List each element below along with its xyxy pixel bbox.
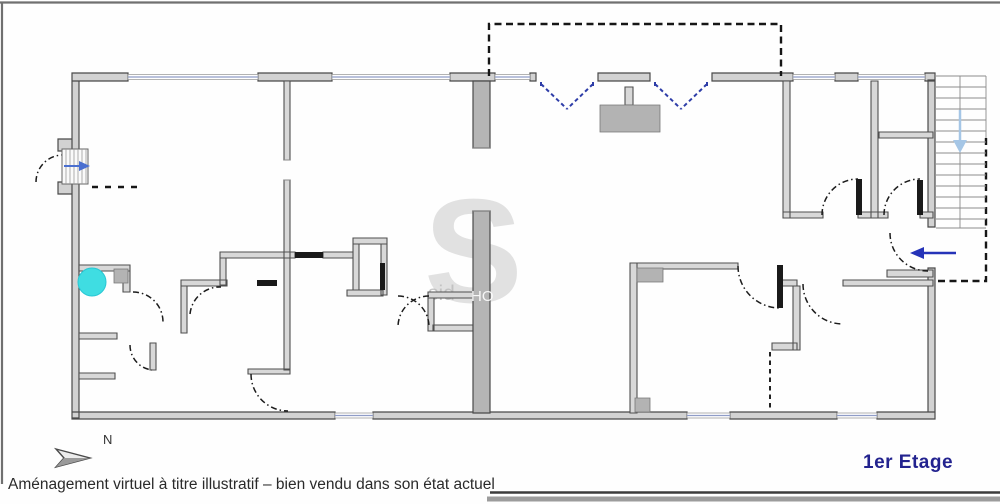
window-glass-lines (128, 77, 925, 416)
bottom-separator-bar (487, 497, 1000, 502)
window-frames (128, 75, 925, 419)
external-staircase (936, 76, 986, 228)
floor-plan-drawing: S sid HO (0, 0, 1000, 504)
external-stair-treads (936, 76, 986, 228)
floor-label: 1er Etage (863, 452, 953, 473)
caption-text: Aménagement virtuel à titre illustratif … (8, 476, 495, 493)
north-arrow: N (56, 432, 112, 467)
cyan-marker-dot (78, 268, 106, 296)
internal-staircase (62, 149, 90, 184)
floor-plan-page: S sid HO (0, 0, 1000, 504)
structural-wall-poche (473, 81, 490, 413)
terrace-dashed-outline (489, 24, 986, 281)
entry-arrow-head-icon (910, 247, 924, 259)
north-label: N (103, 432, 112, 447)
entry-arrow (910, 247, 956, 259)
watermark-wall-text: HO (471, 288, 494, 305)
windows (128, 75, 925, 419)
gray-blocks (114, 105, 663, 412)
stair-down-arrow-head-icon (953, 140, 967, 153)
